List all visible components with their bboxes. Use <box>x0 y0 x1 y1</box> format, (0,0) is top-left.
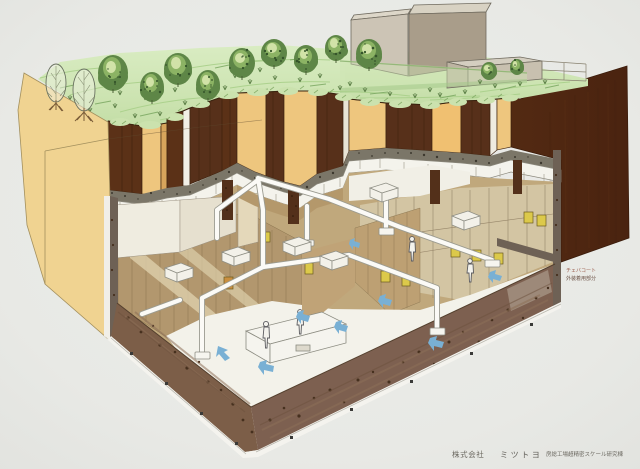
svg-text:房総工場超精密スケール研究棟: 房総工場超精密スケール研究棟 <box>546 450 624 458</box>
svg-text:外装着用部分: 外装着用部分 <box>566 275 596 282</box>
svg-text:チェバコート: チェバコート <box>566 268 596 274</box>
svg-text:ミツトヨ: ミツトヨ <box>500 451 542 460</box>
svg-text:株式会社: 株式会社 <box>452 449 484 459</box>
